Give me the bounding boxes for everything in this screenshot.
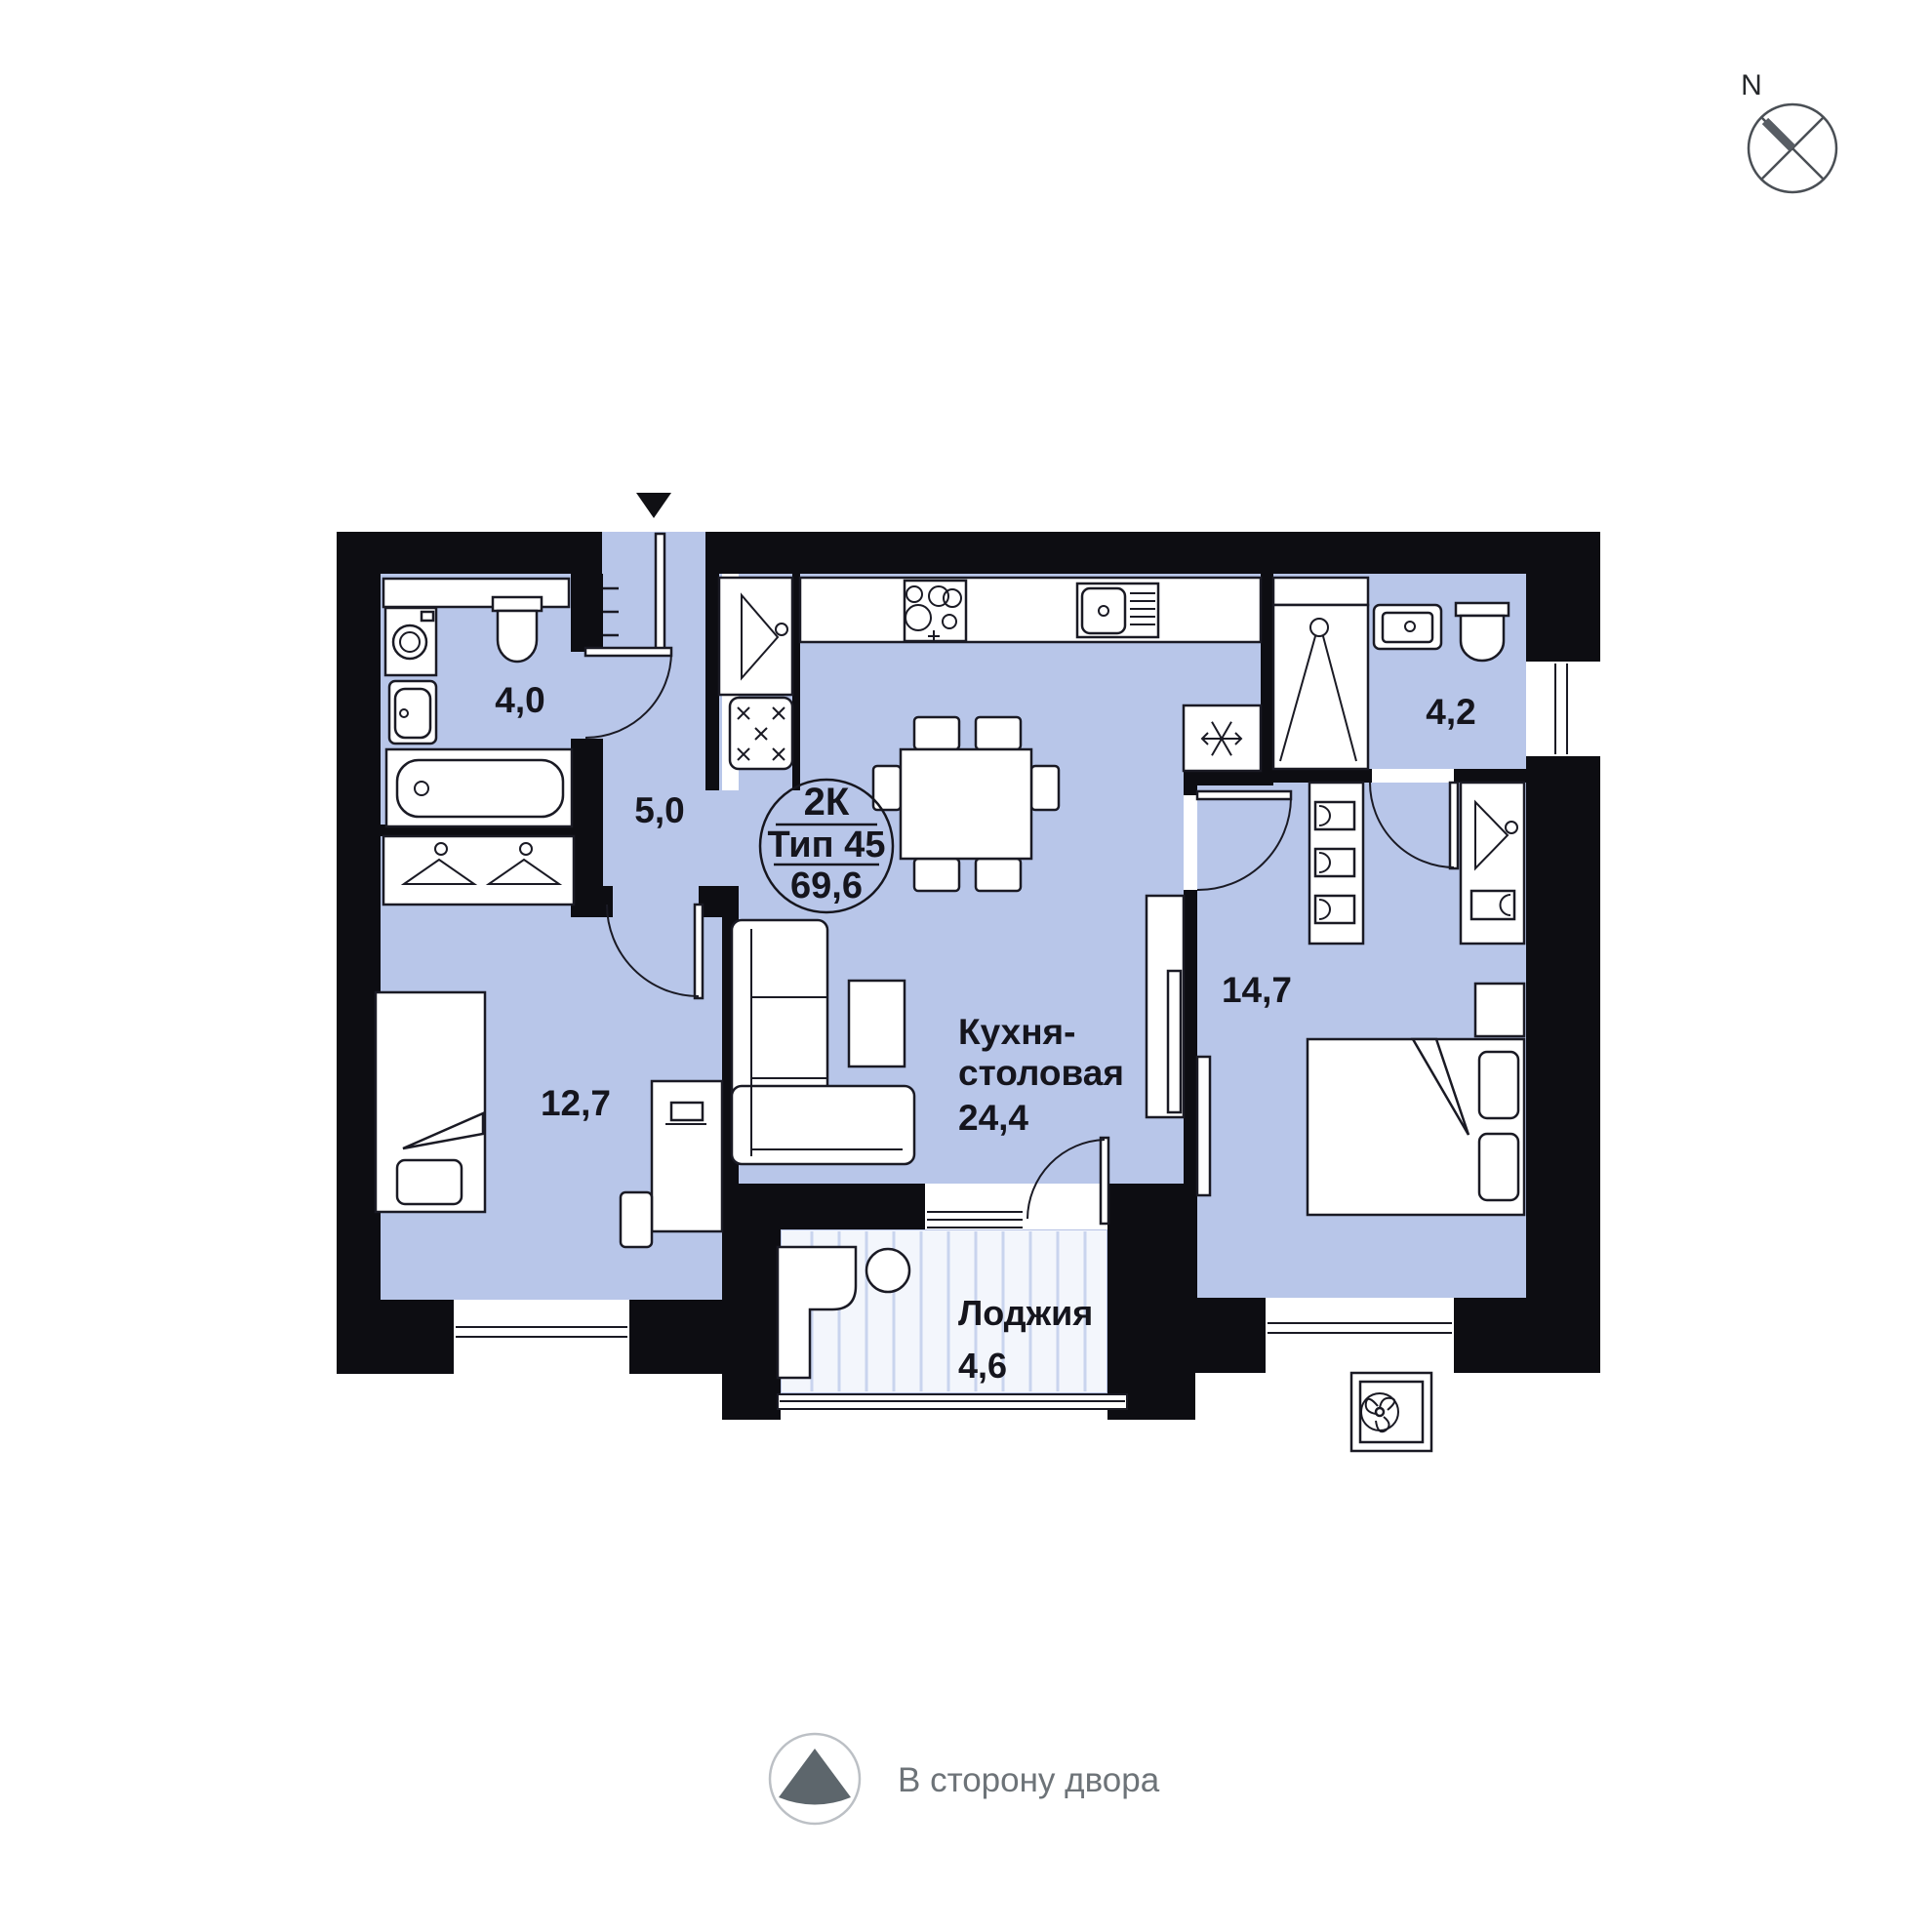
window-bedroom-left	[454, 1300, 629, 1374]
nightstand-icon	[1475, 984, 1524, 1036]
sink-icon	[389, 681, 436, 744]
room-name-kitchen-line1: Кухня-	[958, 1012, 1075, 1052]
tv-kitchen-icon	[1168, 971, 1181, 1112]
toilet-icon	[493, 597, 542, 662]
window-right-wall	[1526, 662, 1600, 756]
kitchen-counter	[800, 578, 1261, 642]
shower-ledge	[1273, 578, 1368, 605]
bathtub-icon	[386, 749, 572, 826]
entry-door-leaf	[656, 534, 664, 649]
area-label-hallway: 5,0	[634, 790, 684, 830]
stove-icon	[905, 581, 966, 642]
fridge-icon	[1184, 705, 1261, 771]
compass-icon: N	[1741, 69, 1836, 192]
balcony-rail	[778, 1394, 1127, 1409]
window-kitchen-loggia	[925, 1184, 1025, 1229]
floor-plan-page: N	[0, 0, 1932, 1932]
ac-unit-icon	[1351, 1373, 1431, 1451]
badge-unit-type: Тип 45	[768, 825, 886, 865]
drawer-unit-icon	[1309, 783, 1363, 944]
area-label-bedroom-right: 14,7	[1222, 970, 1292, 1010]
double-bed-icon	[1308, 1039, 1524, 1215]
sink-icon	[1374, 605, 1441, 649]
courtyard-direction-legend: В сторону двора	[770, 1734, 1160, 1824]
area-label-loggia: 4,6	[958, 1346, 1007, 1386]
wardrobe-icon	[1461, 783, 1524, 944]
loggia-table-icon	[866, 1249, 909, 1292]
area-label-kitchen: 24,4	[958, 1098, 1028, 1138]
hallway-furniture	[719, 578, 792, 769]
courtyard-direction-label: В сторону двора	[898, 1761, 1160, 1799]
compass-north-label: N	[1741, 69, 1762, 101]
toilet-icon	[1456, 603, 1509, 661]
area-label-bathroom-large: 4,2	[1426, 692, 1475, 732]
wardrobe-hangers-icon	[383, 836, 574, 905]
coffee-table-icon	[849, 981, 905, 1067]
chair-icon	[621, 1192, 652, 1247]
unit-type-badge: 2К Тип 45 69,6	[760, 780, 893, 912]
badge-rooms-count: 2К	[804, 781, 850, 824]
room-name-loggia: Лоджия	[958, 1293, 1093, 1333]
washing-machine-icon	[385, 608, 436, 675]
badge-total-area: 69,6	[790, 865, 863, 906]
kitchen-sink-icon	[1077, 584, 1158, 637]
room-name-kitchen-line2: столовая	[958, 1053, 1124, 1093]
shower-icon	[1273, 605, 1368, 769]
closet-hanger-icon	[719, 578, 792, 695]
tv-bedroom-icon	[1197, 1057, 1210, 1195]
window-bedroom-right	[1266, 1298, 1454, 1373]
desk-icon	[652, 1081, 722, 1231]
doormat-icon	[730, 698, 792, 769]
floor-plan-canvas: N	[0, 0, 1932, 1932]
area-label-bedroom-left: 12,7	[541, 1083, 611, 1123]
single-bed-icon	[376, 992, 485, 1212]
loggia-door-opening	[1025, 1184, 1107, 1229]
entrance-marker-icon	[636, 493, 671, 518]
area-label-bathroom-small: 4,0	[495, 680, 544, 720]
